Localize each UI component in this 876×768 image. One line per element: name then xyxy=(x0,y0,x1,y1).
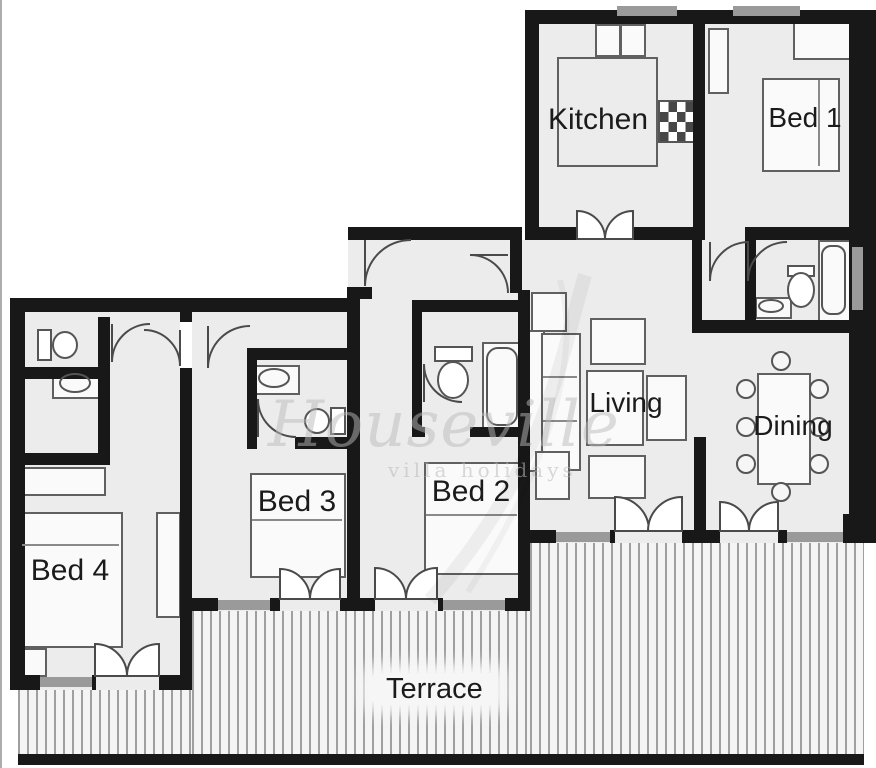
room-label-bed1: Bed 1 xyxy=(760,103,850,132)
room-label-bed3: Bed 3 xyxy=(250,486,344,518)
floor-plan: Kitchen Bed 1 Living Dining Bed 2 Bed 3 … xyxy=(0,0,876,768)
room-label-bed2: Bed 2 xyxy=(424,476,518,508)
doors-and-fixtures-layer xyxy=(0,0,876,768)
room-label-terrace: Terrace xyxy=(372,673,497,705)
sink-basin-icon xyxy=(60,300,783,392)
watermark-brand: Houseville xyxy=(268,388,620,462)
room-label-bed4: Bed 4 xyxy=(20,555,120,587)
room-label-living: Living xyxy=(574,388,678,417)
image-edge-line xyxy=(0,0,2,768)
room-label-kitchen: Kitchen xyxy=(537,104,659,136)
room-label-dining: Dining xyxy=(745,411,841,440)
